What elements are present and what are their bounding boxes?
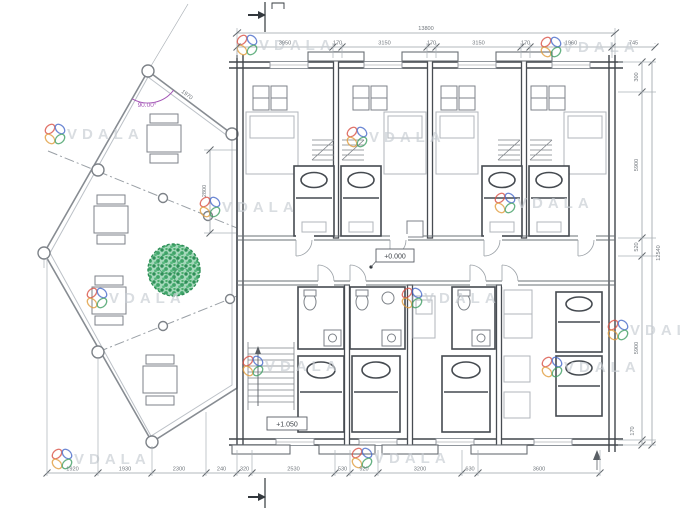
dim-label: 3150 — [378, 41, 390, 47]
vdala-logo-icon — [50, 457, 63, 470]
dim-label: 530 — [338, 467, 347, 473]
vdala-logo-icon — [53, 122, 66, 135]
watermark-text: VDALA — [517, 195, 594, 212]
corridor-doors — [296, 234, 596, 287]
dim-label: 240 — [217, 467, 226, 473]
angle-label: 90.00° — [138, 101, 157, 109]
partition-wall — [345, 285, 350, 453]
vdala-logo-icon — [616, 318, 629, 331]
watermark-text: VDALA — [259, 37, 336, 54]
level-main-label: +0.000 — [384, 254, 406, 261]
threshold-dim: 170 — [630, 426, 636, 435]
table — [147, 114, 181, 163]
dim-label: 170 — [333, 41, 342, 47]
floor-plan-drawing: 90.00° 1970 — [0, 0, 680, 510]
vdala-logo-icon — [540, 365, 553, 378]
angle-annotation: 90.00° — [132, 90, 174, 109]
level-marker-stairs: +1.050 — [267, 417, 307, 430]
right-total-dim: 12540 — [656, 245, 662, 261]
floor-plan-page: 90.00° 1970 — [0, 0, 680, 510]
dim-label: 170 — [427, 41, 436, 47]
vdala-watermark: VDALA — [198, 195, 298, 218]
watermark-text: VDALA — [67, 126, 144, 143]
dim-label: 300 — [634, 72, 640, 81]
partition-wall — [497, 285, 502, 453]
table — [143, 355, 177, 405]
deck-posts — [38, 65, 238, 448]
dim-label: 1960 — [565, 41, 577, 47]
dim-label: 1930 — [119, 467, 131, 473]
vdala-watermark: VDALA — [606, 318, 680, 341]
vdala-logo-icon — [60, 447, 73, 460]
vdala-logo-icon — [616, 328, 629, 341]
watermark-text: VDALA — [74, 451, 151, 468]
dim-label: 5900 — [634, 159, 640, 171]
vdala-logo-icon — [245, 43, 258, 56]
table — [94, 195, 128, 244]
upper-rooms — [246, 86, 606, 237]
section-marks — [248, 2, 284, 508]
dim-label: 520 — [634, 242, 640, 251]
watermark-text: VDALA — [374, 450, 451, 467]
terrace-deck: 90.00° 1970 — [38, 4, 238, 448]
dim-label: 745 — [629, 41, 638, 47]
nightstand — [407, 221, 423, 237]
vdala-watermark: VDALA — [43, 122, 143, 145]
dim-label: 3150 — [472, 41, 484, 47]
dim-label: 5900 — [634, 342, 640, 354]
vdala-logo-icon — [43, 122, 56, 135]
level-marker-main: +0.000 — [369, 249, 414, 269]
vdala-logo-icon — [540, 355, 553, 368]
dim-label: 1920 — [66, 467, 78, 473]
dim-label: 920 — [359, 467, 368, 473]
wardrobes — [253, 86, 565, 110]
dim-label: 630 — [465, 467, 474, 473]
left-chain-dim: 2800 — [202, 185, 208, 197]
dim-label: 3600 — [533, 467, 545, 473]
watermark-text: VDALA — [222, 199, 299, 216]
dim-label: 2530 — [287, 467, 299, 473]
watermark-text: VDALA — [564, 359, 641, 376]
dim-label: 3950 — [279, 41, 291, 47]
vdala-logo-icon — [235, 43, 248, 56]
dim-label: 3200 — [414, 467, 426, 473]
level-stairs-label: +1.050 — [276, 422, 298, 429]
dim-label: 320 — [240, 467, 249, 473]
vdala-logo-icon — [235, 33, 248, 46]
vdala-logo-icon — [43, 132, 56, 145]
vdala-logo-icon — [345, 125, 358, 138]
partition-wall — [408, 285, 413, 453]
vdala-logo-icon — [50, 447, 63, 460]
watermark-text: VDALA — [630, 322, 680, 339]
watermark-text: VDALA — [265, 358, 342, 375]
dim-label: 170 — [521, 41, 530, 47]
vdala-logo-icon — [53, 132, 66, 145]
watermark-text: VDALA — [369, 129, 446, 146]
dim-label: 2300 — [173, 467, 185, 473]
vdala-watermark: VDALA — [400, 286, 500, 309]
watermark-text: VDALA — [424, 290, 501, 307]
tree-symbol — [148, 244, 200, 296]
vdala-logo-icon — [245, 33, 258, 46]
vdala-logo-icon — [355, 125, 368, 138]
watermark-text: VDALA — [109, 290, 186, 307]
top-total-dim: 13800 — [418, 26, 434, 32]
